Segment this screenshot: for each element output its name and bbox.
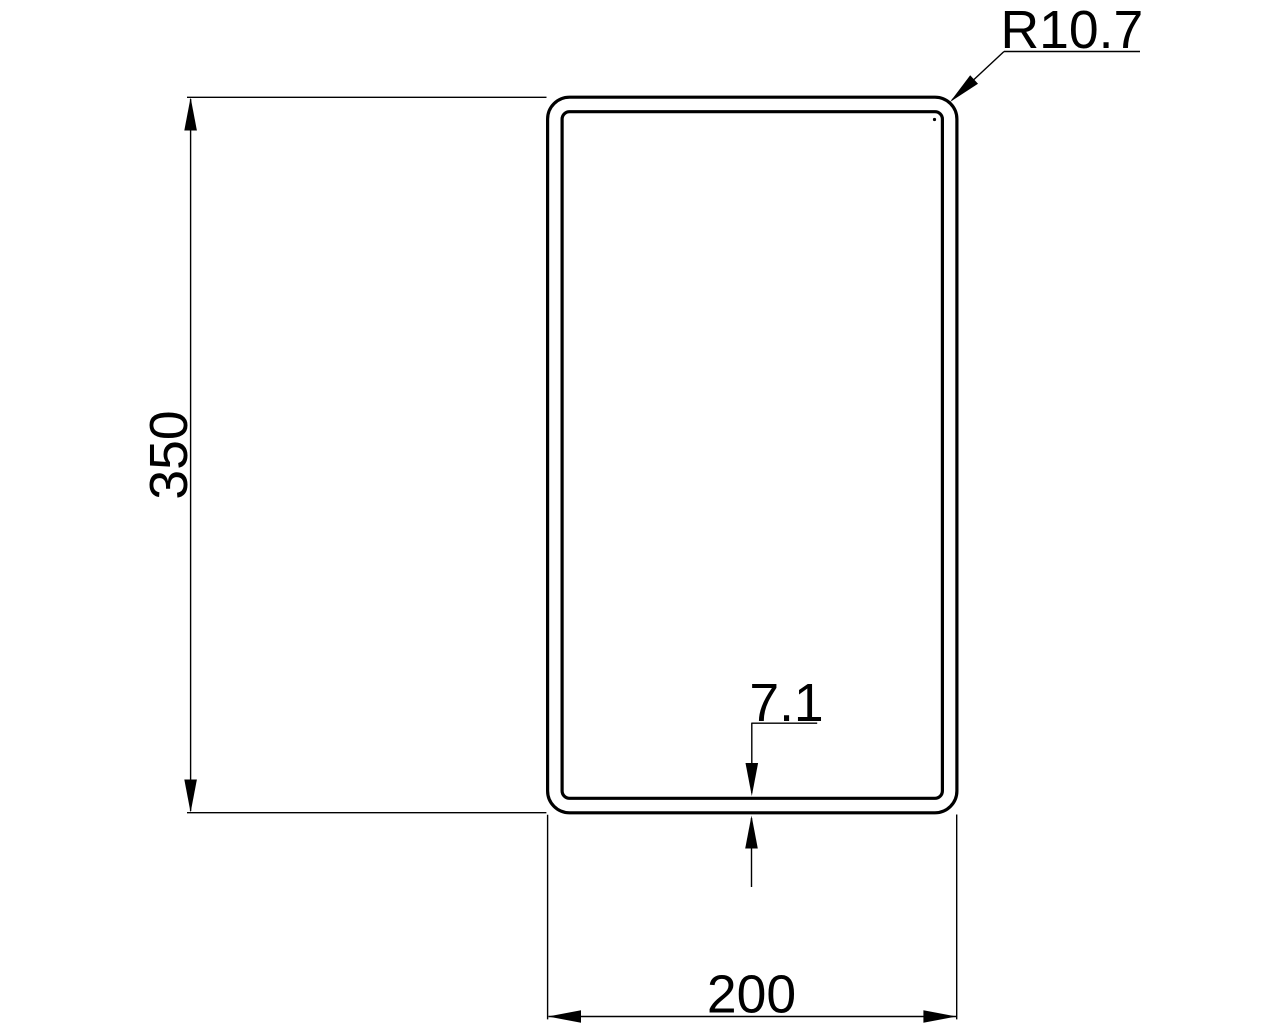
svg-text:350: 350 bbox=[140, 410, 199, 499]
svg-text:200: 200 bbox=[707, 966, 796, 1024]
svg-text:R10.7: R10.7 bbox=[1001, 1, 1144, 60]
svg-text:7.1: 7.1 bbox=[749, 674, 823, 733]
